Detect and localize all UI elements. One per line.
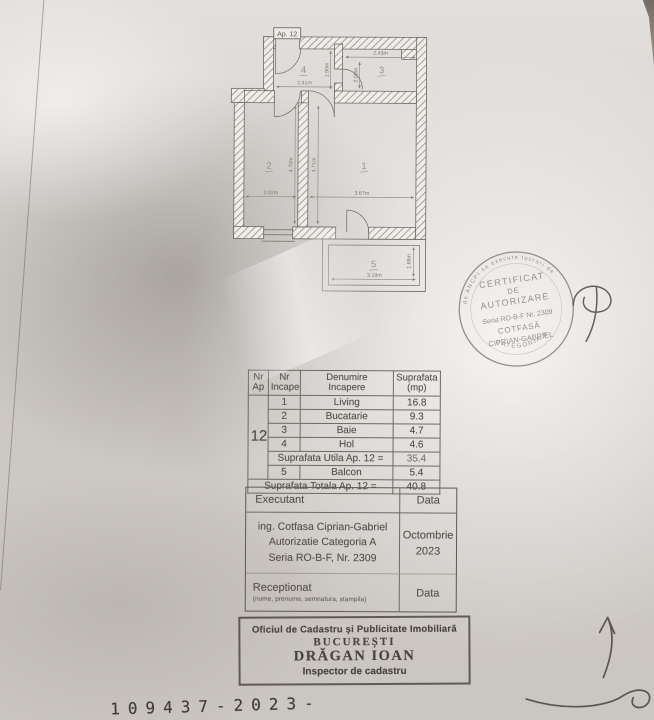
room-area: 4.7 bbox=[393, 424, 440, 438]
room-name: Bucatarie bbox=[300, 409, 393, 423]
receptionat-label: Receptionat bbox=[253, 582, 312, 594]
document-content: Ap. 12 2.43m 1.90m 2.08m 2.41m bbox=[0, 0, 654, 720]
room-nr: 4 bbox=[268, 437, 300, 451]
room-nr: 3 bbox=[268, 423, 300, 437]
apartment-label: Ap. 12 bbox=[277, 31, 297, 38]
room-name: Hol bbox=[300, 437, 393, 451]
useful-area-value: 35.4 bbox=[393, 452, 440, 466]
executant-block: Executant Data ing. Cotfasa Ciprian-Gabr… bbox=[245, 487, 458, 613]
dim-hall-height: 1.90m bbox=[324, 62, 330, 77]
apartment-label-box: Ap. 12 bbox=[274, 28, 301, 39]
dim-room3-width: 2.43m bbox=[373, 51, 388, 57]
room-label-5: 5 bbox=[371, 259, 376, 270]
room-name: Living bbox=[300, 395, 393, 409]
executant-line1: ing. Cotfasa Ciprian-Gabriel bbox=[258, 520, 388, 536]
dim-room1-height: 4.71m bbox=[311, 157, 317, 172]
useful-area-label: Suprafata Utila Ap. 12 = bbox=[268, 451, 393, 466]
room-name: Baie bbox=[300, 423, 393, 437]
header-nr-ap: NrAp bbox=[248, 370, 268, 395]
balcony-row: 5 Balcon 5.4 bbox=[248, 465, 440, 480]
scanned-document: Ap. 12 2.43m 1.90m 2.08m 2.41m bbox=[0, 0, 654, 720]
table-row: 2 Bucatarie 9.3 bbox=[248, 409, 440, 424]
table-row: 4 Hol 4.6 bbox=[248, 437, 440, 452]
dim-room1-width: 3.67m bbox=[354, 191, 369, 197]
office-stamp-inspector-name: DRĂGAN IOAN bbox=[294, 648, 416, 666]
executant-data-label: Data bbox=[400, 488, 456, 513]
table-row: 12 1 Living 16.8 bbox=[248, 395, 440, 410]
executant-details: ing. Cotfasa Ciprian-Gabriel Autorizatie… bbox=[246, 513, 400, 574]
window-room2 bbox=[262, 227, 295, 242]
header-nr-incapere: NrIncapere bbox=[268, 370, 300, 395]
executant-line2: Autorizatie Categoria A bbox=[269, 535, 376, 551]
dim-balcony-width: 3.19m bbox=[367, 273, 382, 279]
certification-stamp: de ANCPI sa execute lucrari de CATEGORIA… bbox=[438, 245, 624, 391]
dim-balcony-depth: 1.68m bbox=[406, 253, 412, 268]
room-label-1: 1 bbox=[361, 161, 366, 172]
room-label-2: 2 bbox=[266, 161, 271, 172]
office-stamp-city: BUCUREȘTI bbox=[313, 636, 395, 648]
room-label-4: 4 bbox=[301, 65, 306, 76]
dim-room2-width: 2.02m bbox=[263, 190, 278, 196]
room-area: 5.4 bbox=[393, 466, 440, 480]
floor-plan: Ap. 12 2.43m 1.90m 2.08m 2.41m bbox=[228, 26, 429, 295]
executant-date: Octombrie 2023 bbox=[400, 513, 456, 573]
registration-number: 109437-2023- bbox=[110, 693, 322, 718]
office-stamp-title: Inspector de cadastru bbox=[303, 666, 407, 678]
room-nr: 2 bbox=[268, 409, 300, 423]
dim-room3-door: 2.08m bbox=[353, 67, 359, 82]
table-row: 3 Baie 4.7 bbox=[248, 423, 440, 438]
room-area: 9.3 bbox=[393, 410, 440, 424]
room-nr: 5 bbox=[268, 465, 300, 479]
executant-label: Executant bbox=[246, 488, 400, 514]
header-denumire: DenumireIncapere bbox=[300, 370, 393, 395]
receptionat-note: (nume, prenume, semnatura, stampila) bbox=[253, 596, 367, 604]
dim-room2-height: 4.70m bbox=[288, 157, 294, 172]
stamp-line2: DE bbox=[507, 285, 521, 296]
useful-area-row: Suprafata Utila Ap. 12 = 35.4 bbox=[248, 451, 440, 466]
executant-signature bbox=[573, 286, 611, 341]
room-area: 16.8 bbox=[393, 396, 440, 410]
room-area: 4.6 bbox=[393, 438, 440, 452]
executant-line3: Seria RO-B-F, Nr. 2309 bbox=[268, 550, 376, 566]
inspector-signature bbox=[418, 598, 653, 720]
room-name: Balcon bbox=[300, 465, 393, 479]
apartment-number-cell: 12 bbox=[248, 395, 268, 479]
area-table: NrAp NrIncapere DenumireIncapere Suprafa… bbox=[247, 370, 441, 495]
table-header-row: NrAp NrIncapere DenumireIncapere Suprafa… bbox=[248, 370, 440, 396]
receptionat-cell: Receptionat (nume, prenume, semnatura, s… bbox=[246, 573, 400, 612]
dim-room4-width: 2.41m bbox=[297, 80, 312, 86]
header-suprafata: Suprafata(mp) bbox=[393, 371, 440, 396]
room-nr: 1 bbox=[268, 395, 300, 409]
room-label-3: 3 bbox=[379, 65, 384, 76]
